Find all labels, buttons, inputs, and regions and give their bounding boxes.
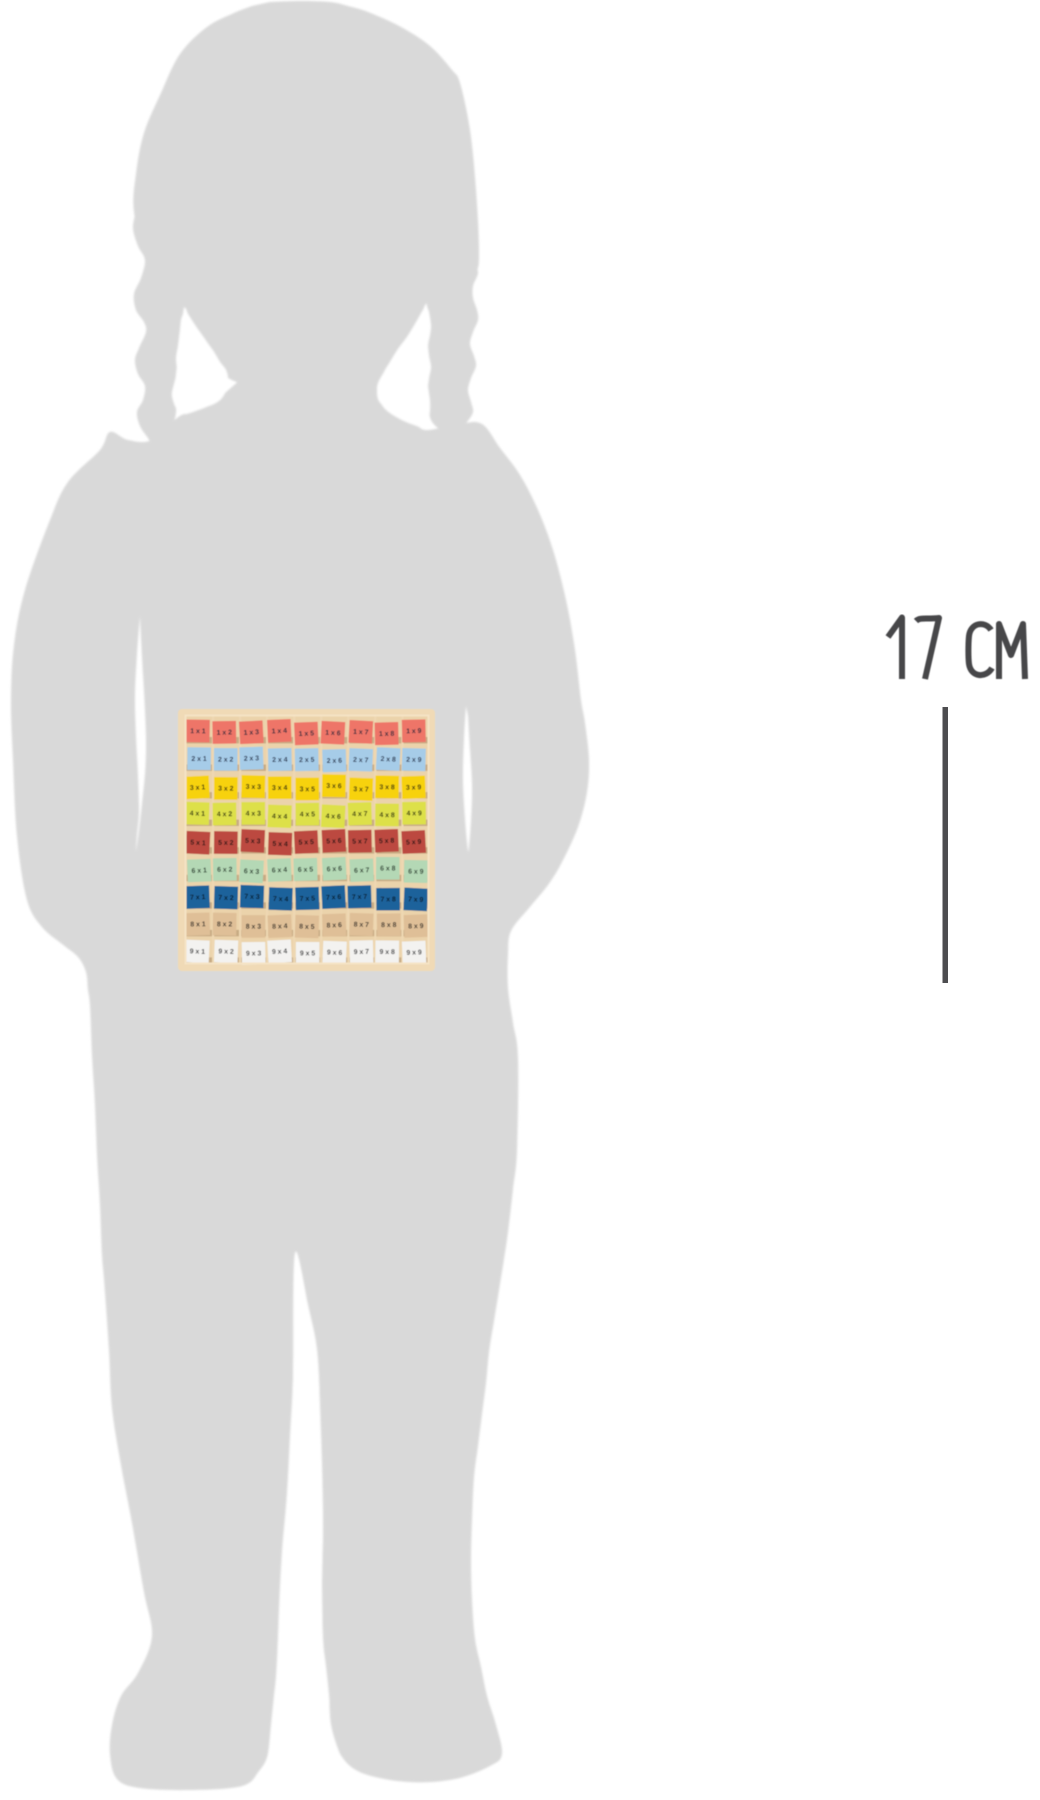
svg-text:5 x 6: 5 x 6 xyxy=(326,838,342,846)
svg-text:4 x 4: 4 x 4 xyxy=(272,813,288,821)
svg-text:2 x 5: 2 x 5 xyxy=(299,757,315,764)
svg-text:8 x 8: 8 x 8 xyxy=(381,922,397,929)
svg-text:7 x 9: 7 x 9 xyxy=(408,896,424,904)
svg-text:9 x 7: 9 x 7 xyxy=(354,949,370,956)
svg-text:5 x 4: 5 x 4 xyxy=(272,841,288,848)
svg-text:8 x 7: 8 x 7 xyxy=(354,921,370,929)
svg-text:4 x 3: 4 x 3 xyxy=(246,811,262,818)
svg-text:1 x 7: 1 x 7 xyxy=(353,729,369,737)
svg-text:1 x 5: 1 x 5 xyxy=(299,730,315,738)
svg-text:7 x 3: 7 x 3 xyxy=(244,894,260,902)
svg-text:8 x 1: 8 x 1 xyxy=(190,921,206,928)
svg-text:9 x 8: 9 x 8 xyxy=(379,949,395,956)
svg-text:9 x 3: 9 x 3 xyxy=(246,950,262,957)
svg-text:5 x 1: 5 x 1 xyxy=(190,840,206,848)
svg-text:5 x 9: 5 x 9 xyxy=(406,839,422,847)
svg-text:3 x 4: 3 x 4 xyxy=(272,785,288,792)
svg-text:8 x 6: 8 x 6 xyxy=(326,922,342,930)
svg-text:5 x 5: 5 x 5 xyxy=(298,839,314,847)
svg-text:1 x 8: 1 x 8 xyxy=(379,731,395,738)
svg-text:9 x 2: 9 x 2 xyxy=(218,948,234,956)
svg-text:3 x 7: 3 x 7 xyxy=(353,786,369,794)
svg-text:9 x 4: 9 x 4 xyxy=(272,948,288,956)
svg-text:3 x 6: 3 x 6 xyxy=(326,783,342,790)
svg-text:4 x 9: 4 x 9 xyxy=(406,810,422,817)
svg-text:3 x 2: 3 x 2 xyxy=(218,786,234,793)
svg-text:9 x 5: 9 x 5 xyxy=(300,950,316,957)
svg-text:1 x 4: 1 x 4 xyxy=(272,728,288,736)
svg-text:5 x 7: 5 x 7 xyxy=(352,838,368,845)
svg-text:3 x 9: 3 x 9 xyxy=(406,784,422,792)
svg-text:6 x 4: 6 x 4 xyxy=(272,867,288,875)
svg-text:8 x 3: 8 x 3 xyxy=(246,924,262,931)
svg-text:6 x 1: 6 x 1 xyxy=(191,867,207,875)
svg-text:3 x 5: 3 x 5 xyxy=(300,786,316,793)
svg-text:9 x 1: 9 x 1 xyxy=(190,948,206,956)
svg-text:2 x 9: 2 x 9 xyxy=(406,757,422,764)
svg-text:8 x 2: 8 x 2 xyxy=(217,921,233,928)
svg-text:2 x 2: 2 x 2 xyxy=(218,757,234,764)
svg-text:8 x 4: 8 x 4 xyxy=(272,923,288,931)
svg-text:2 x 8: 2 x 8 xyxy=(380,756,396,764)
svg-text:2 x 3: 2 x 3 xyxy=(244,755,260,762)
svg-text:1 x 3: 1 x 3 xyxy=(244,729,260,737)
svg-text:5 x 3: 5 x 3 xyxy=(245,838,261,846)
svg-text:7 x 7: 7 x 7 xyxy=(352,894,368,901)
svg-text:6 x 2: 6 x 2 xyxy=(217,867,233,874)
svg-text:6 x 6: 6 x 6 xyxy=(326,866,342,874)
svg-text:8 x 5: 8 x 5 xyxy=(299,924,315,931)
svg-text:7 x 2: 7 x 2 xyxy=(218,895,234,902)
svg-text:3 x 8: 3 x 8 xyxy=(379,784,395,791)
svg-text:7 x 8: 7 x 8 xyxy=(380,896,396,903)
svg-text:2 x 7: 2 x 7 xyxy=(353,757,369,765)
svg-text:6 x 5: 6 x 5 xyxy=(298,866,314,873)
svg-text:9 x 6: 9 x 6 xyxy=(327,949,343,957)
svg-text:5 x 2: 5 x 2 xyxy=(218,840,234,847)
svg-text:1 x 1: 1 x 1 xyxy=(190,728,206,735)
svg-text:4 x 5: 4 x 5 xyxy=(300,811,316,818)
svg-text:4 x 1: 4 x 1 xyxy=(190,810,206,817)
svg-text:9 x 9: 9 x 9 xyxy=(406,949,422,957)
svg-text:6 x 3: 6 x 3 xyxy=(244,868,260,876)
svg-text:3 x 3: 3 x 3 xyxy=(246,784,262,791)
svg-text:6 x 8: 6 x 8 xyxy=(380,865,396,872)
svg-text:1 x 6: 1 x 6 xyxy=(325,730,341,738)
svg-text:8 x 9: 8 x 9 xyxy=(408,923,424,931)
svg-text:4 x 6: 4 x 6 xyxy=(325,813,341,821)
svg-text:2 x 4: 2 x 4 xyxy=(272,757,288,764)
svg-text:2 x 6: 2 x 6 xyxy=(327,758,343,765)
svg-text:1 x 9: 1 x 9 xyxy=(406,728,422,735)
svg-text:4 x 2: 4 x 2 xyxy=(217,811,233,818)
svg-text:7 x 5: 7 x 5 xyxy=(300,895,316,902)
svg-text:3 x 1: 3 x 1 xyxy=(190,784,206,792)
svg-text:7 x 6: 7 x 6 xyxy=(326,894,342,902)
svg-text:2 x 1: 2 x 1 xyxy=(191,756,207,763)
svg-text:7 x 4: 7 x 4 xyxy=(273,896,289,904)
svg-text:4 x 8: 4 x 8 xyxy=(379,812,395,819)
svg-text:6 x 9: 6 x 9 xyxy=(408,868,424,875)
svg-text:6 x 7: 6 x 7 xyxy=(354,867,370,875)
svg-text:1 x 2: 1 x 2 xyxy=(217,729,233,736)
svg-text:4 x 7: 4 x 7 xyxy=(352,811,368,818)
svg-text:7 x 1: 7 x 1 xyxy=(190,894,206,902)
svg-text:5 x 8: 5 x 8 xyxy=(379,838,395,846)
